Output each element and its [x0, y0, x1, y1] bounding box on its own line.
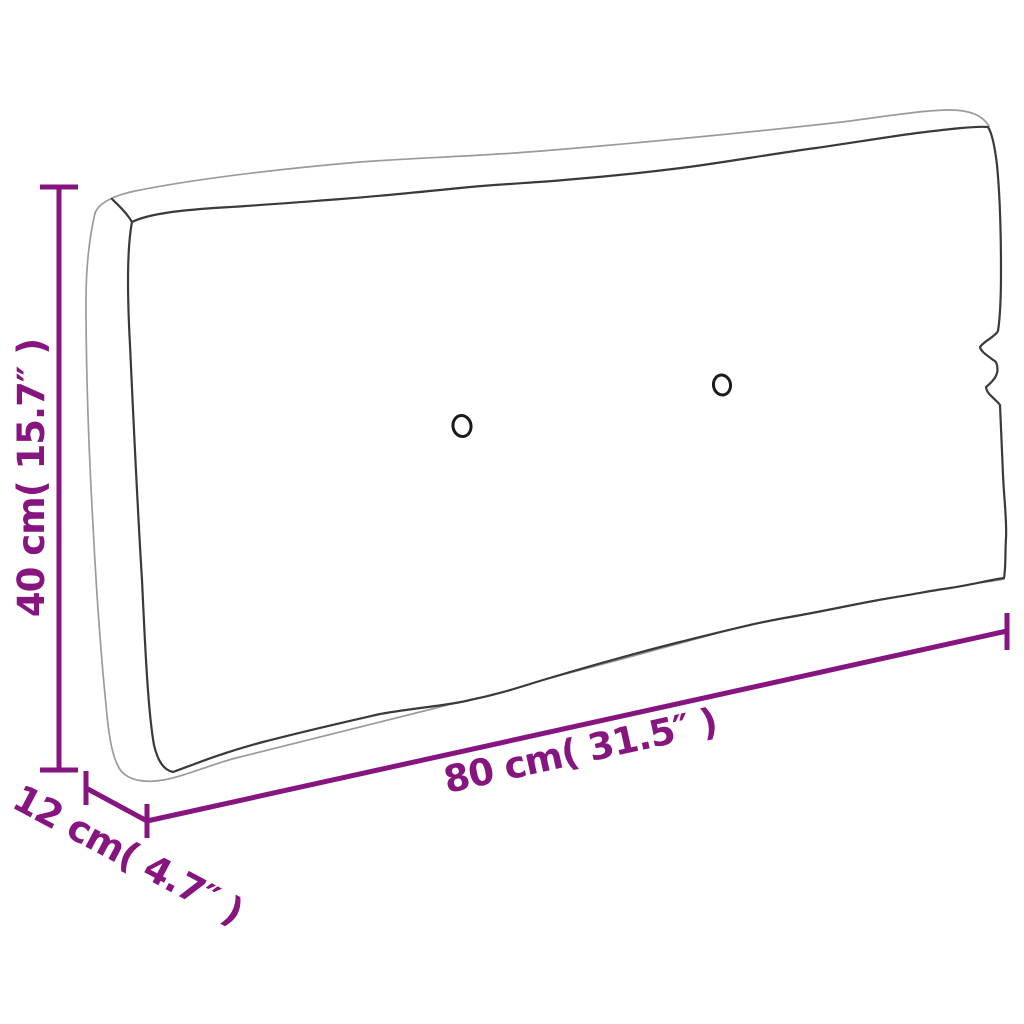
- cushion-corner-seam: [112, 199, 132, 222]
- height-dimension-label: 40 cm( 15.7″ ): [10, 339, 53, 617]
- product-dimension-diagram: 40 cm( 15.7″ ) 80 cm( 31.5″ ) 12 cm( 4.7…: [0, 0, 1024, 1024]
- dimension-diagram-canvas: 40 cm( 15.7″ ) 80 cm( 31.5″ ) 12 cm( 4.7…: [0, 0, 1024, 1024]
- cushion-front-panel: [128, 127, 1006, 772]
- depth-dimension-label: 12 cm( 4.7″ ): [6, 776, 250, 933]
- cushion-outline: [86, 110, 1006, 781]
- width-dimension-label: 80 cm( 31.5″ ): [440, 700, 721, 802]
